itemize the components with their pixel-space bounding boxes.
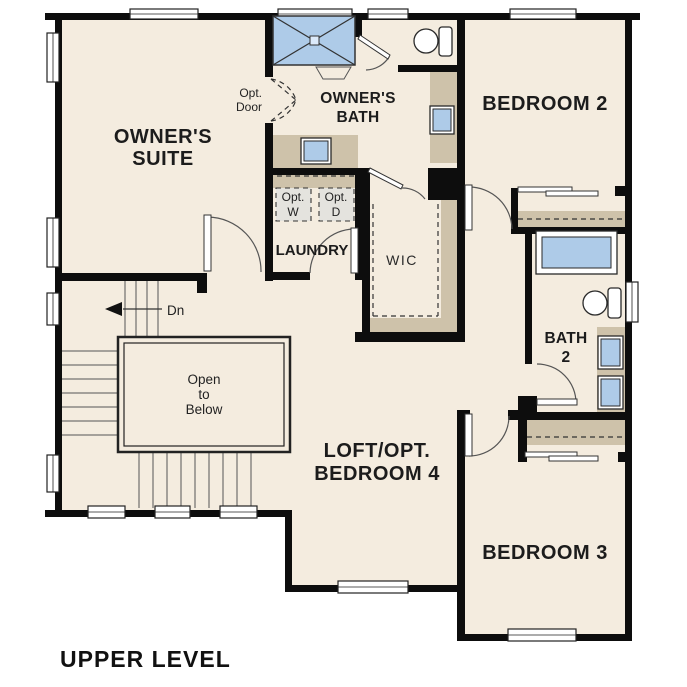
loft-label: BEDROOM 4 (314, 463, 440, 485)
window-icon (47, 33, 59, 82)
window-icon (155, 506, 190, 518)
opt-dryer-label: Opt. (325, 190, 348, 204)
opt-door-label: Door (236, 100, 262, 114)
laundry-counter (267, 175, 356, 188)
stairs-down-label: Dn (167, 303, 184, 318)
wic-shelf-bottom (362, 318, 457, 332)
bath2-label: 2 (562, 349, 571, 366)
bedroom3-closet-shelf (527, 420, 625, 445)
wic-shelf-right (441, 200, 457, 332)
sink-icon (598, 376, 623, 409)
open-to-below-label: Open (187, 372, 220, 387)
opt-dryer-label: D (332, 205, 341, 219)
window-icon (47, 455, 59, 492)
window-icon (130, 9, 198, 19)
window-icon (508, 629, 576, 641)
plan-title: UPPER LEVEL (60, 646, 231, 672)
floor-plan-page: OWNER'S SUITE OWNER'S BATH BEDROOM 2 LAU… (0, 0, 687, 687)
window-icon (47, 218, 59, 267)
floor-plan-svg: OWNER'S SUITE OWNER'S BATH BEDROOM 2 LAU… (0, 0, 687, 687)
bath2-label: BATH (544, 330, 587, 347)
owners-suite-label: OWNER'S (114, 126, 212, 148)
opt-washer-label: W (287, 205, 299, 219)
laundry-label: LAUNDRY (276, 242, 349, 259)
bedroom3-label: BEDROOM 3 (482, 542, 608, 564)
open-to-below-label: Below (186, 402, 223, 417)
opt-door-label: Opt. (239, 86, 262, 100)
wic-label: WIC (386, 252, 418, 268)
owners-suite-label: SUITE (132, 148, 193, 170)
window-icon (510, 9, 576, 19)
window-icon (626, 282, 638, 322)
owners-bath-label: OWNER'S (320, 90, 396, 107)
opt-washer-label: Opt. (282, 190, 305, 204)
window-icon (368, 9, 408, 19)
toilet-icon (583, 288, 621, 318)
window-icon (338, 581, 408, 593)
sink-icon (430, 106, 454, 134)
window-icon (47, 293, 59, 325)
owners-bath-label: BATH (336, 109, 379, 126)
bedroom2-label: BEDROOM 2 (482, 93, 608, 115)
open-to-below-label: to (198, 387, 209, 402)
loft-label: LOFT/OPT. (324, 440, 431, 462)
window-icon (88, 506, 125, 518)
bathtub-icon (536, 231, 617, 274)
sink-icon (301, 138, 331, 164)
sink-icon (598, 336, 623, 369)
window-icon (220, 506, 257, 518)
